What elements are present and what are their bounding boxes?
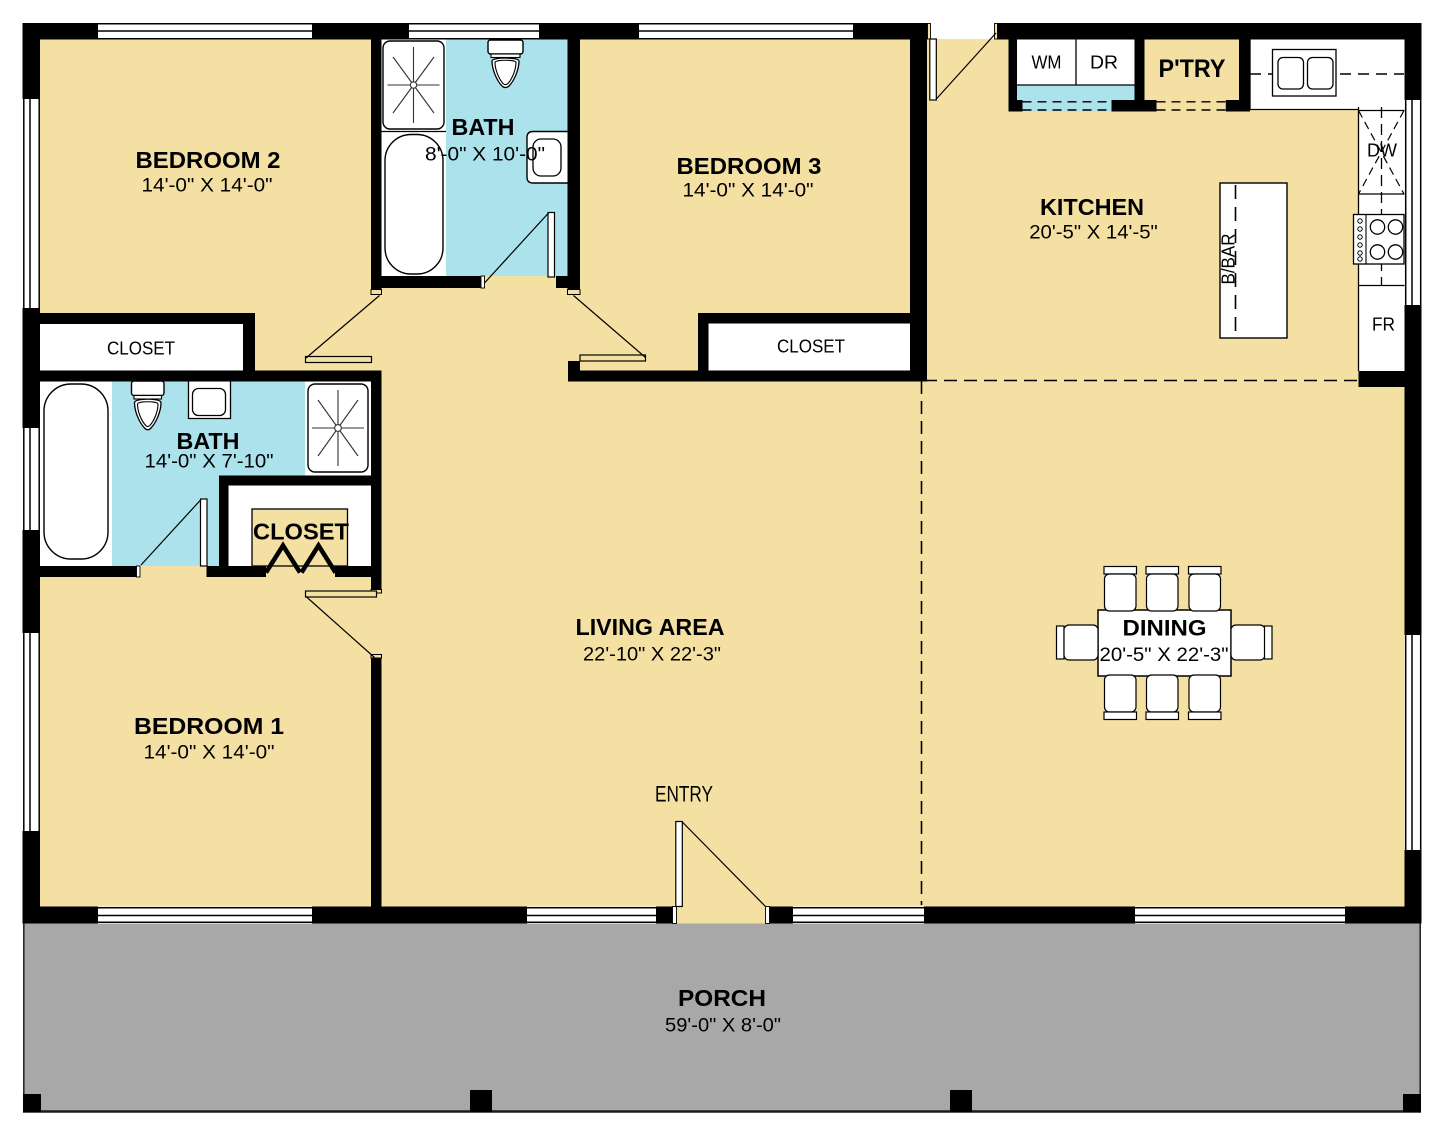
- svg-text:22'-10" X 22'-3": 22'-10" X 22'-3": [583, 645, 721, 666]
- svg-text:BEDROOM 1: BEDROOM 1: [134, 713, 284, 739]
- svg-text:ENTRY: ENTRY: [655, 782, 713, 807]
- svg-text:B/BAR: B/BAR: [1218, 234, 1239, 285]
- svg-text:BATH: BATH: [177, 428, 240, 454]
- svg-text:DW: DW: [1367, 140, 1398, 161]
- svg-text:FR: FR: [1372, 314, 1395, 335]
- svg-text:8'-0" X 10'-0": 8'-0" X 10'-0": [425, 145, 545, 166]
- svg-text:DINING: DINING: [1123, 616, 1207, 641]
- svg-text:DR: DR: [1090, 52, 1118, 73]
- svg-text:14'-0" X 14'-0": 14'-0" X 14'-0": [144, 743, 275, 764]
- svg-text:P'TRY: P'TRY: [1159, 55, 1226, 83]
- svg-text:LIVING AREA: LIVING AREA: [576, 614, 725, 640]
- svg-text:20'-5" X 14'-5": 20'-5" X 14'-5": [1029, 223, 1158, 244]
- svg-text:KITCHEN: KITCHEN: [1040, 194, 1144, 220]
- svg-text:CLOSET: CLOSET: [777, 336, 845, 357]
- svg-text:BATH: BATH: [452, 114, 515, 140]
- svg-text:CLOSET: CLOSET: [253, 519, 350, 545]
- svg-text:CLOSET: CLOSET: [107, 338, 175, 359]
- svg-text:14'-0" X 7'-10": 14'-0" X 7'-10": [145, 452, 274, 473]
- svg-text:14'-0" X 14'-0": 14'-0" X 14'-0": [683, 181, 814, 202]
- svg-text:14'-0" X 14'-0": 14'-0" X 14'-0": [142, 176, 273, 197]
- svg-text:WM: WM: [1032, 52, 1062, 73]
- svg-text:20'-5" X 22'-3": 20'-5" X 22'-3": [1100, 645, 1229, 666]
- svg-text:BEDROOM 2: BEDROOM 2: [136, 147, 281, 173]
- svg-text:BEDROOM 3: BEDROOM 3: [677, 153, 822, 179]
- svg-text:59'-0" X 8'-0": 59'-0" X 8'-0": [665, 1016, 781, 1037]
- svg-text:PORCH: PORCH: [678, 985, 766, 1011]
